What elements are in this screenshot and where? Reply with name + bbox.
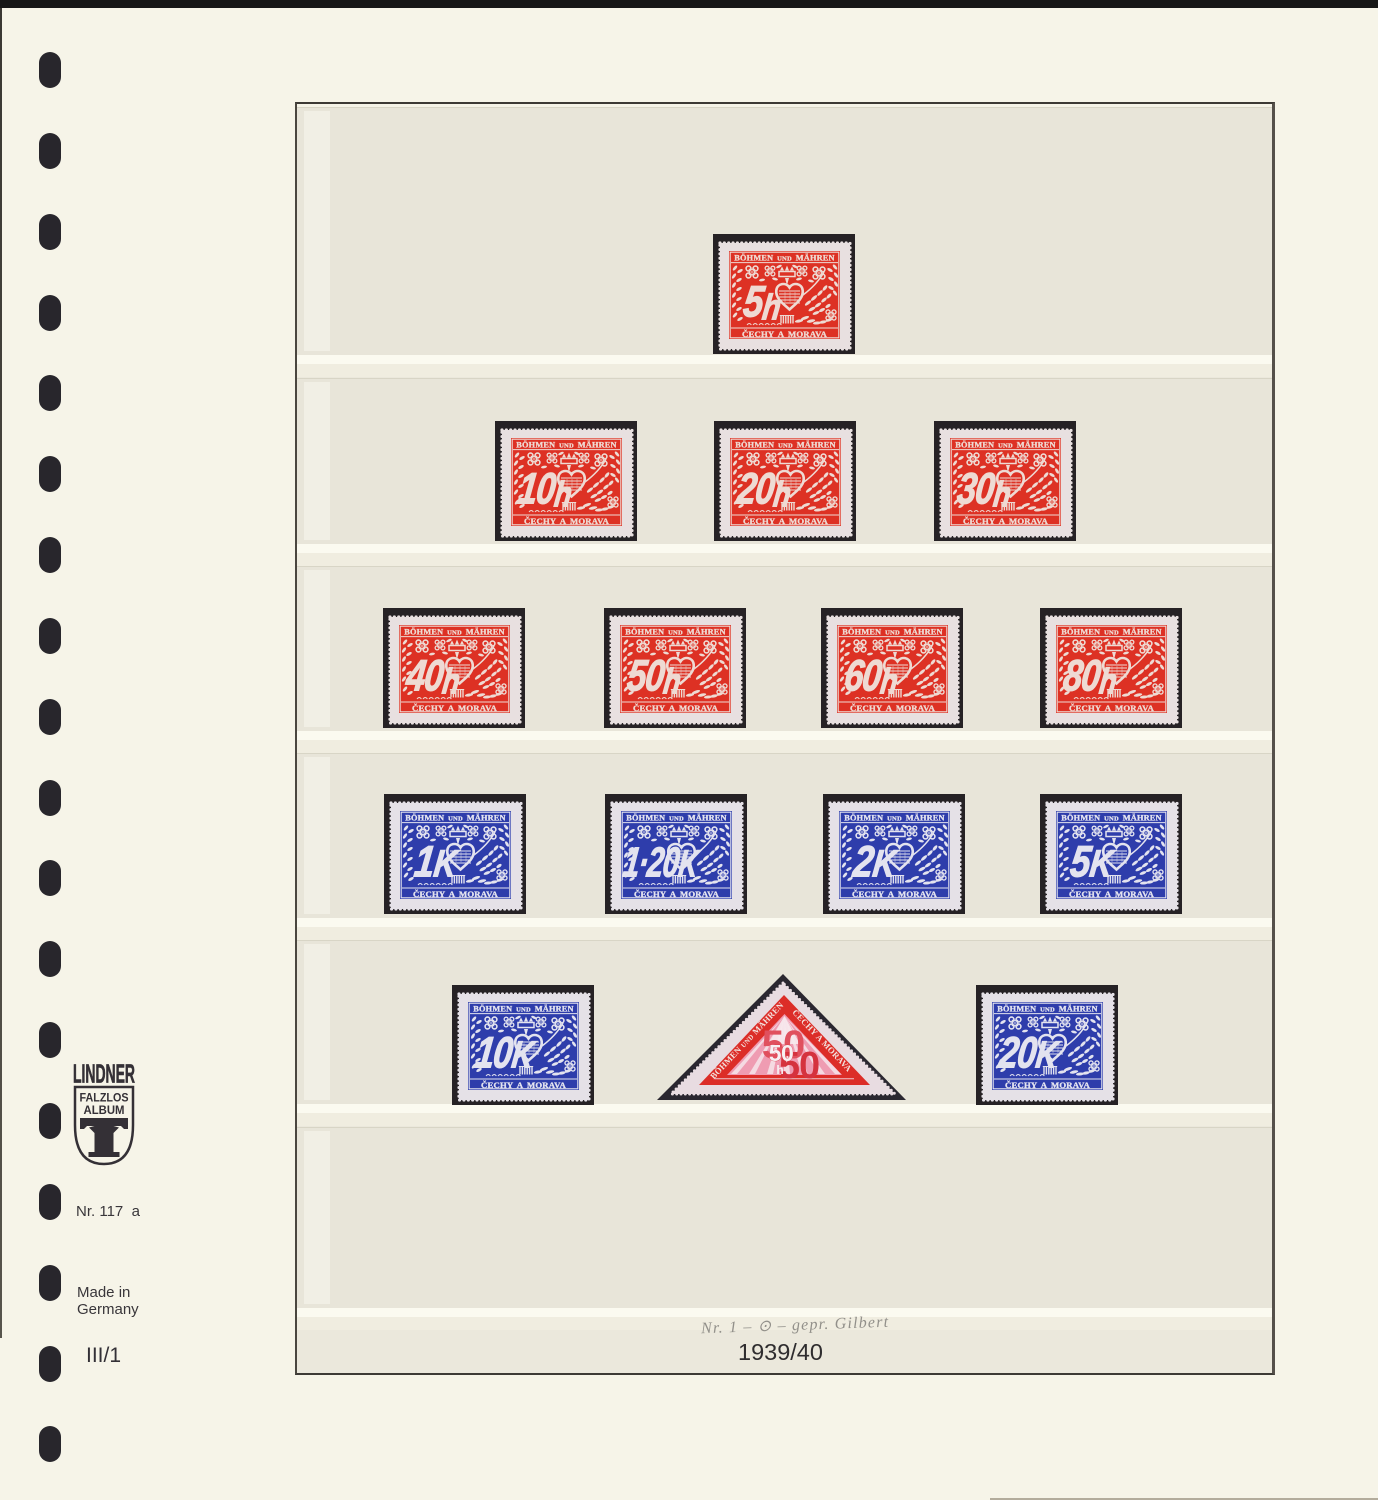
svg-text:FALZLOS: FALZLOS [80,1093,129,1105]
svg-text:ALBUM: ALBUM [84,1105,125,1117]
svg-text:LINDNER: LINDNER [73,1059,135,1089]
svg-text:h: h [776,1063,783,1077]
svg-text:10K: 10K [473,1029,539,1078]
svg-text:1·20K: 1·20K [621,838,703,885]
svg-text:20K: 20K [996,1029,1063,1078]
